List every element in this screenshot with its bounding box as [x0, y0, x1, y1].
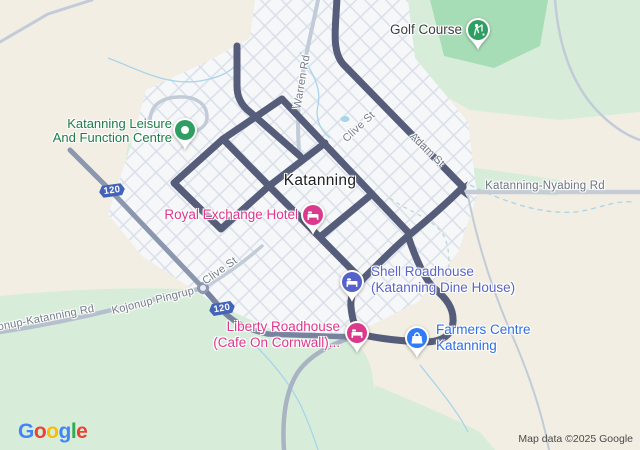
farmers-centre-pin[interactable] [404, 325, 430, 359]
place-dot-icon [181, 126, 189, 134]
google-logo[interactable]: Google [18, 420, 87, 444]
map-viewport[interactable]: Golf Course Katanning Leisure And Functi… [0, 0, 640, 450]
golf-course-label[interactable]: Golf Course [390, 22, 462, 38]
google-logo-letter: o [46, 420, 58, 443]
google-logo-letter: e [76, 420, 87, 443]
liberty-roadhouse-label[interactable]: Liberty Roadhouse (Cafe On Cornwall)... [213, 319, 340, 351]
farmers-centre-label[interactable]: Farmers Centre Katanning [436, 322, 531, 354]
farmers-centre-label-line2: Katanning [436, 338, 531, 354]
leisure-centre-pin[interactable] [172, 117, 198, 151]
leisure-centre-label-line1: Katanning Leisure [53, 117, 172, 131]
map-attribution: Map data ©2025 Google [518, 433, 633, 445]
city-label-katanning[interactable]: Katanning [284, 172, 357, 190]
liberty-roadhouse-label-line1: Liberty Roadhouse [213, 319, 340, 335]
google-logo-letter: o [34, 420, 46, 443]
golf-course-pin[interactable] [465, 17, 491, 51]
royal-exchange-hotel-label[interactable]: Royal Exchange Hotel [164, 207, 298, 223]
google-logo-letter: G [18, 420, 34, 443]
liberty-roadhouse-pin[interactable] [344, 320, 370, 354]
royal-exchange-hotel-pin[interactable] [300, 202, 326, 236]
farmers-centre-label-line1: Farmers Centre [436, 322, 531, 338]
liberty-roadhouse-label-line2: (Cafe On Cornwall)... [213, 335, 340, 351]
shell-roadhouse-label[interactable]: Shell Roadhouse (Katanning Dine House) [371, 264, 515, 296]
shell-roadhouse-label-line2: (Katanning Dine House) [371, 280, 515, 296]
shell-roadhouse-label-line1: Shell Roadhouse [371, 264, 515, 280]
road-label-katanning-nyabing-rd: Katanning-Nyabing Rd [485, 180, 605, 192]
shell-roadhouse-pin[interactable] [339, 269, 365, 303]
leisure-centre-label-line2: And Function Centre [53, 131, 172, 145]
leisure-centre-label[interactable]: Katanning Leisure And Function Centre [53, 117, 172, 145]
google-logo-letter: g [59, 420, 71, 443]
